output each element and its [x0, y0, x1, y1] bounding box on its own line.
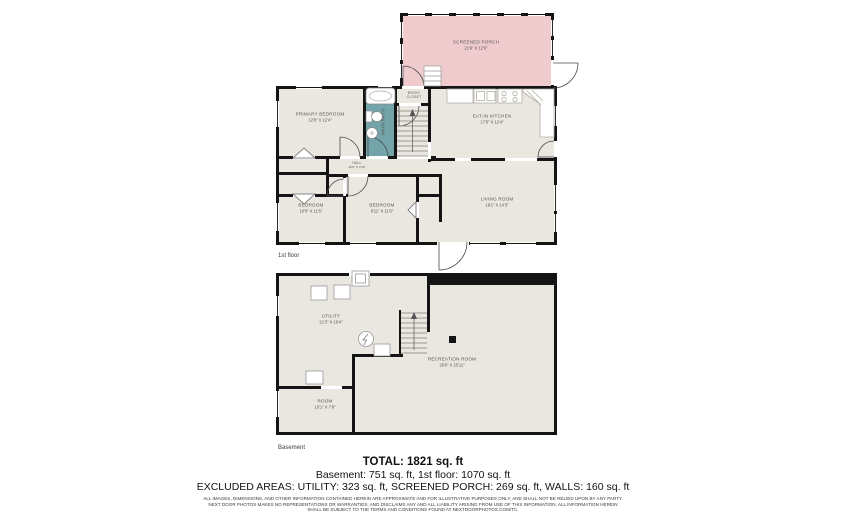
label-utility: UTILITY 21'3" X 19'4"	[319, 314, 342, 325]
bathtub	[366, 88, 395, 104]
washer	[311, 286, 327, 300]
label-bath: MAIN BATH	[381, 109, 386, 135]
excluded-areas: EXCLUDED AREAS: UTILITY: 323 sq. ft, SCR…	[0, 481, 826, 493]
utility-sink	[352, 271, 369, 286]
label-primary-bedroom: PRIMARY BEDROOM 12'8" X 12'4"	[296, 112, 345, 123]
floorplan-canvas: SCREENED PORCH 21'9" X 12'6" PRIMARY BED…	[0, 0, 850, 520]
support-post	[449, 336, 456, 343]
floorplan-drawing	[0, 0, 850, 520]
label-basement-room: ROOM 10'1" X 7'8"	[315, 399, 336, 410]
toilet	[366, 111, 372, 122]
label-bedroom-mid: BEDROOM 8'11" X 11'6"	[369, 203, 394, 214]
dryer	[334, 285, 350, 299]
label-living-room: LIVING ROOM 19'1" X 14'3"	[481, 197, 514, 208]
porch-steps	[424, 66, 441, 86]
label-screened-porch: SCREENED PORCH 21'9" X 12'6"	[453, 40, 499, 51]
first-floor-caption: 1st floor	[278, 253, 299, 259]
label-recreation-room: RECREATION ROOM 26'9" X 25'11"	[428, 357, 476, 368]
basement-caption: Basement	[278, 445, 305, 451]
label-entry-closet: ENTRY CLOSET	[407, 91, 422, 99]
area-summary: TOTAL: 1821 sq. ft Basement: 751 sq. ft,…	[0, 456, 826, 513]
stove	[498, 89, 522, 103]
label-eat-in-kitchen: EAT-IN KITCHEN 17'8" X 12'4"	[473, 114, 512, 125]
label-bedroom-left: BEDROOM 10'8" X 11'6"	[298, 203, 323, 214]
label-hall: HALL 16'3" X 3'10"	[348, 161, 365, 169]
electrical-panel	[359, 332, 374, 347]
bath-sink	[367, 128, 378, 139]
screened-porch-area	[400, 13, 554, 89]
floor-areas: Basement: 751 sq. ft, 1st floor: 1070 sq…	[0, 469, 826, 481]
disclaimer: ALL IMAGES, DIMENSIONS, AND OTHER INFORM…	[0, 496, 826, 513]
total-area: TOTAL: 1821 sq. ft	[0, 456, 826, 469]
